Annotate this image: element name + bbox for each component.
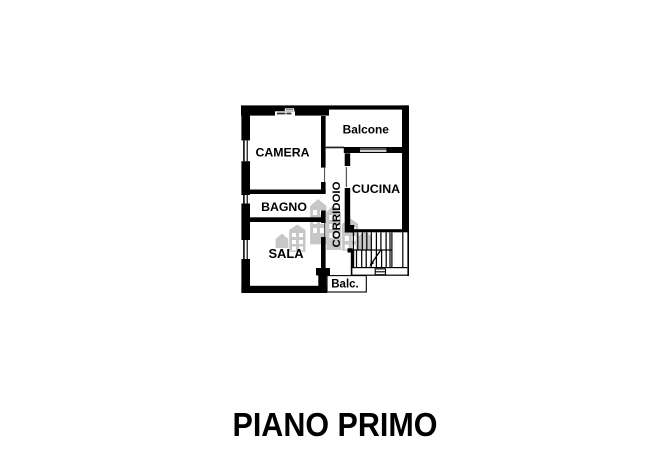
svg-text:PIANO PRIMO: PIANO PRIMO: [233, 406, 438, 443]
svg-text:Balc.: Balc.: [331, 279, 359, 291]
svg-text:SALA: SALA: [268, 246, 303, 261]
svg-text:CAMERA: CAMERA: [256, 146, 310, 160]
svg-text:CUCINA: CUCINA: [352, 182, 400, 196]
svg-text:CORRIDOIO: CORRIDOIO: [331, 182, 343, 248]
svg-text:Balcone: Balcone: [343, 123, 390, 137]
svg-text:BAGNO: BAGNO: [261, 200, 307, 214]
